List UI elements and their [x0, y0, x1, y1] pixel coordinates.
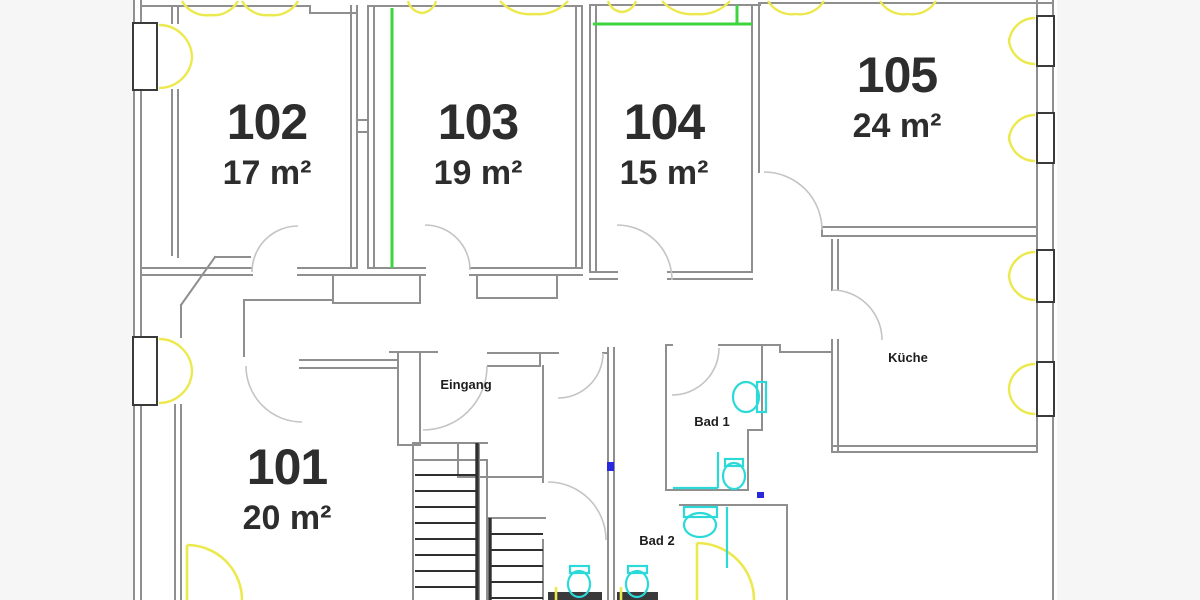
room-104-area: 15 m² — [620, 154, 709, 192]
bath-2-label: Bad 2 — [639, 533, 674, 548]
room-105-number: 105 — [857, 47, 938, 103]
room-104-number: 104 — [624, 94, 706, 150]
kitchen-label: Küche — [888, 350, 928, 365]
entrance-label: Eingang — [440, 377, 491, 392]
wall-chunk — [477, 275, 557, 298]
room-101-number: 101 — [247, 439, 328, 495]
room-105-area: 24 m² — [853, 107, 942, 145]
floor-plan-drawing: 102 17 m² 103 19 m² 104 15 m² 105 24 m² … — [0, 0, 1200, 600]
room-101-area: 20 m² — [243, 499, 332, 537]
window-frame — [1037, 113, 1054, 163]
window-frame — [1037, 250, 1054, 302]
wall-chunk — [333, 275, 420, 303]
room-103-number: 103 — [438, 94, 518, 150]
room-103-area: 19 m² — [434, 154, 523, 192]
floor-plan-page: 102 17 m² 103 19 m² 104 15 m² 105 24 m² … — [0, 0, 1200, 600]
room-102-number: 102 — [227, 94, 307, 150]
bath-1-label: Bad 1 — [694, 414, 729, 429]
blue-marker — [757, 492, 764, 498]
window-frame — [133, 23, 157, 90]
room-102-area: 17 m² — [223, 154, 312, 192]
window-frame — [133, 337, 157, 405]
window-frame — [1037, 16, 1054, 66]
blue-marker — [607, 462, 614, 471]
window-frame — [1037, 362, 1054, 416]
